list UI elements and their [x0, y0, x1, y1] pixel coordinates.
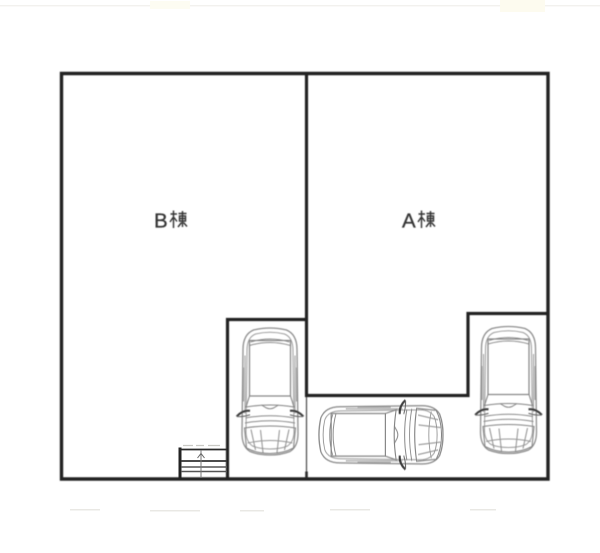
svg-text:A: A [402, 210, 416, 233]
svg-text:B: B [154, 210, 168, 233]
